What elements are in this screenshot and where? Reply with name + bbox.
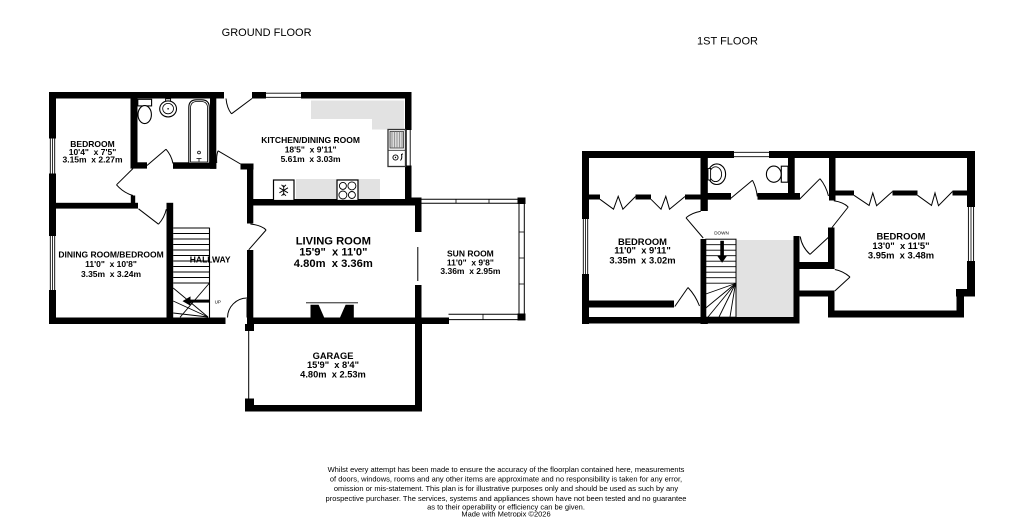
- svg-text:DOWN: DOWN: [714, 231, 729, 236]
- svg-text:of doors, windows, rooms and a: of doors, windows, rooms and any other i…: [330, 475, 682, 484]
- svg-text:HALLWAY: HALLWAY: [190, 254, 231, 264]
- svg-text:3.35m x 3.24m: 3.35m x 3.24m: [81, 269, 141, 279]
- svg-text:3.35m x 3.02m: 3.35m x 3.02m: [609, 254, 675, 265]
- svg-text:15'9" x 8'4": 15'9" x 8'4": [307, 360, 359, 370]
- svg-text:3.36m x 2.95m: 3.36m x 2.95m: [440, 266, 500, 276]
- svg-text:GROUND FLOOR: GROUND FLOOR: [222, 27, 312, 39]
- svg-text:4.80m x 2.53m: 4.80m x 2.53m: [300, 370, 366, 380]
- svg-text:3.95m x 3.48m: 3.95m x 3.48m: [868, 249, 934, 260]
- svg-text:5.61m x 3.03m: 5.61m x 3.03m: [281, 154, 341, 164]
- svg-text:Whilst every attempt has been: Whilst every attempt has been made to en…: [328, 465, 685, 474]
- svg-text:DINING ROOM/BEDROOM: DINING ROOM/BEDROOM: [58, 250, 163, 260]
- svg-text:15'9" x 11'0": 15'9" x 11'0": [299, 246, 367, 258]
- svg-text:3.15m x 2.27m: 3.15m x 2.27m: [62, 155, 122, 165]
- svg-text:4.80m x 3.36m: 4.80m x 3.36m: [294, 258, 373, 270]
- svg-text:omission or mis-statement. Thi: omission or mis-statement. This plan is …: [334, 484, 678, 493]
- svg-text:UP: UP: [215, 300, 221, 305]
- svg-text:1ST FLOOR: 1ST FLOOR: [697, 36, 758, 48]
- svg-text:Made with Metropix ©2026: Made with Metropix ©2026: [461, 510, 550, 517]
- svg-text:11'0" x 10'8": 11'0" x 10'8": [85, 259, 137, 269]
